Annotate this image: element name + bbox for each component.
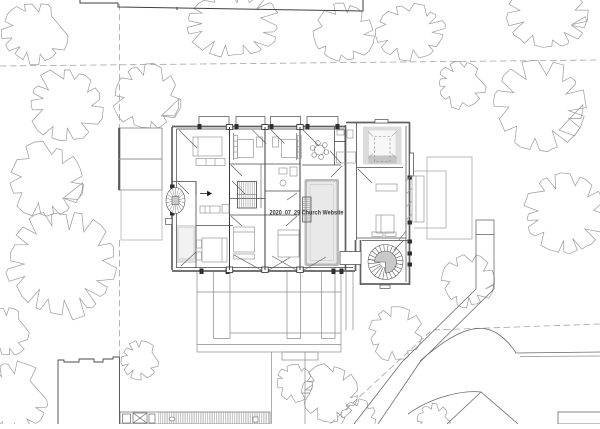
svg-text:2020_07_29 Church Website: 2020_07_29 Church Website — [270, 210, 344, 217]
